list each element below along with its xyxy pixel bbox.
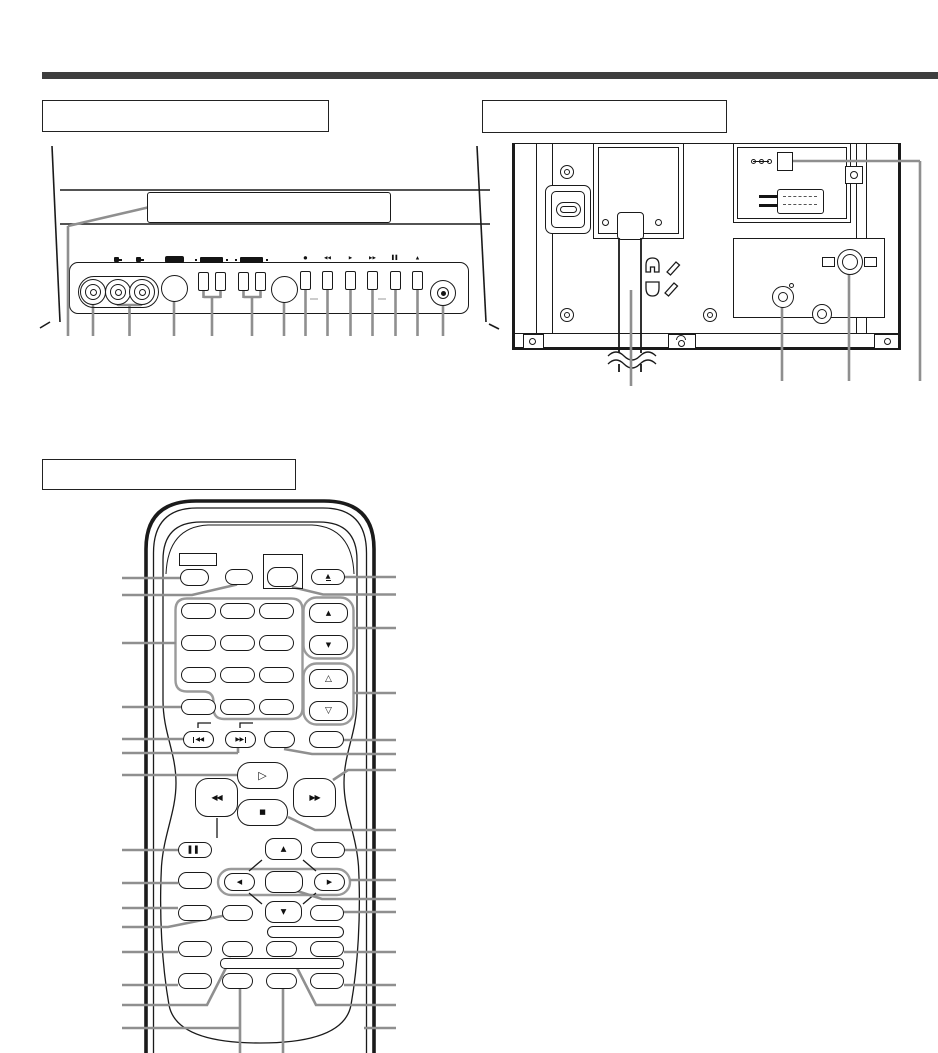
digit-button-8	[220, 667, 255, 683]
enter-button	[259, 699, 294, 715]
leader	[122, 585, 237, 596]
channel-label-bar	[240, 257, 263, 263]
headphone-jack-center	[441, 291, 446, 296]
volume-down-icon: ▼	[326, 642, 331, 649]
front-play-button	[345, 271, 356, 290]
digit-button-6	[259, 635, 294, 651]
plug-detail-line	[783, 196, 817, 197]
leader	[288, 817, 396, 830]
skip-forward-button: ▶▶	[225, 731, 256, 748]
plug-connector	[777, 189, 824, 214]
channel-down-button	[238, 272, 249, 291]
front-fast-forward-button	[367, 271, 378, 290]
pause-icon: ▌▌	[189, 847, 202, 854]
front-eject-button	[412, 271, 423, 290]
remote-button-e3	[266, 973, 297, 989]
leader	[292, 587, 396, 595]
remote-button-c2	[222, 905, 253, 921]
leader	[122, 958, 231, 1005]
pause-icon: ▌▌	[388, 257, 403, 262]
volume-down-button	[198, 272, 209, 291]
remote-button-l3	[178, 905, 212, 921]
remote-volume-down-button: ▼	[309, 635, 348, 655]
base-plate-hole	[678, 340, 685, 347]
panel-divider-mark	[310, 298, 318, 300]
remote-button-d2	[222, 941, 253, 957]
screw-center	[564, 169, 570, 175]
antenna-mount-tab	[864, 257, 877, 267]
nav-down-icon: ▼	[281, 908, 287, 916]
remote-button-d1	[178, 941, 212, 957]
label-tick	[226, 259, 228, 261]
channel-down-icon: ▽	[325, 707, 332, 716]
stop-icon: ■	[259, 809, 266, 816]
rear-panel-label-box	[482, 100, 727, 133]
front-audio-jack-center	[139, 289, 146, 296]
front-panel-label-box	[42, 100, 329, 132]
digit-button-3	[259, 603, 294, 619]
remote-button-c3	[310, 905, 344, 921]
panel-divider-mark	[378, 298, 386, 300]
rear-jack-2-center	[817, 309, 827, 319]
rear-base-line	[512, 333, 901, 334]
remote-eject-button: ▲	[311, 569, 345, 585]
front-knob-1	[161, 275, 188, 302]
remote-button-e4	[310, 973, 344, 989]
leader	[122, 748, 238, 753]
remote-button-l2	[178, 872, 212, 889]
remote-button-r1	[311, 842, 345, 858]
skip-forward-bracket	[240, 723, 253, 728]
base-plate-hole	[529, 338, 536, 345]
remote-channel-up-button: △	[309, 669, 348, 689]
eject-icon: ▲	[326, 573, 331, 582]
antenna-mount-tab	[822, 257, 835, 267]
screw-center	[564, 312, 570, 318]
label-tick	[266, 259, 268, 261]
nav-left-icon: ◀	[237, 879, 242, 886]
eject-icon: ▲	[410, 257, 425, 262]
digit-button-2	[220, 603, 255, 619]
remote-label-box	[42, 459, 296, 490]
play-icon: ▶	[343, 257, 358, 262]
front-rewind-button	[322, 271, 333, 290]
rear-switch	[777, 152, 793, 171]
screw-center	[707, 312, 713, 318]
rear-frame-line	[552, 143, 553, 334]
remote-wide-bar-2	[220, 958, 344, 969]
knob-label-bar	[165, 256, 184, 263]
label-tick	[195, 259, 197, 261]
remote-function-button	[225, 569, 253, 585]
fast-forward-icon: ▶▶	[309, 794, 319, 802]
vent-hole	[602, 219, 609, 226]
leader	[333, 770, 396, 780]
rewind-icon: ◀◀	[211, 794, 221, 802]
plug-prong	[759, 204, 778, 207]
leader	[297, 891, 396, 899]
vent-hole	[655, 219, 662, 226]
remote-button-d4	[310, 941, 344, 957]
front-record-button	[300, 271, 311, 290]
nav-up-button: ▲	[265, 838, 302, 860]
label-tick	[235, 259, 237, 261]
plug-prong	[759, 195, 778, 198]
remote-button-e2	[222, 973, 253, 989]
skip-forward-icon: ▶▶	[235, 737, 245, 743]
rewind-button: ◀◀	[195, 778, 238, 817]
remote-menu-button	[309, 731, 344, 748]
remote-display-button	[264, 731, 295, 748]
remote-wide-bar-1	[267, 926, 344, 938]
input-select-button	[181, 699, 216, 715]
rear-jack-panel	[733, 238, 885, 318]
base-foot-hole	[884, 338, 891, 345]
mount-hole	[850, 171, 858, 179]
leader	[122, 914, 232, 927]
page-top-rule	[42, 72, 938, 79]
channel-up-button	[255, 272, 266, 291]
cassette-door	[147, 192, 391, 223]
play-button: ▷	[237, 762, 288, 789]
digit-button-9	[259, 667, 294, 683]
rear-av-jack-center	[778, 292, 788, 302]
remote-tv-vcr-button	[267, 567, 298, 587]
stop-button: ■	[237, 799, 288, 826]
digit-button-4	[181, 635, 216, 651]
remote-channel-down-button: ▽	[309, 701, 348, 721]
jack-label-mark-tail	[119, 259, 122, 261]
record-icon: ●	[298, 257, 313, 262]
digit-button-7	[181, 667, 216, 683]
power-cord-bracket	[617, 212, 644, 240]
nav-select-button	[265, 871, 303, 893]
pause-button: ▌▌	[178, 842, 212, 858]
nav-right-icon: ▶	[327, 879, 332, 886]
manual-page: ● ◀◀ ▶ ▶▶ ▌▌ ▲ ▲ ▲ ▼ △ ▽ ◀◀ ▶▶ ▷ ◀◀ ▶▶ ■…	[0, 0, 938, 1053]
nav-right-button: ▶	[314, 873, 345, 891]
skip-back-button: ◀◀	[183, 731, 214, 748]
fast-forward-button: ▶▶	[293, 778, 336, 817]
channel-up-icon: △	[325, 675, 332, 684]
leader	[240, 989, 283, 1053]
nav-up-icon: ▲	[281, 845, 287, 853]
skip-back-bracket	[198, 723, 211, 728]
remote-volume-up-button: ▲	[309, 603, 348, 623]
leader	[284, 749, 396, 754]
play-icon: ▷	[258, 770, 266, 781]
remote-button-e1	[178, 973, 212, 989]
front-video-jack-center	[90, 289, 97, 296]
rear-av-jack-mark	[789, 283, 794, 288]
jack-label-mark-tail	[141, 259, 144, 261]
digit-button-5	[220, 635, 255, 651]
skip-back-icon: ◀◀	[193, 737, 203, 743]
nav-down-button: ▼	[265, 901, 302, 923]
remote-label-frame-1	[179, 553, 217, 566]
volume-label-bar	[200, 257, 223, 263]
fast-forward-icon: ▶▶	[365, 257, 380, 262]
antenna-coax-inner	[842, 254, 858, 270]
rear-frame-line	[536, 143, 537, 334]
nav-left-button: ◀	[224, 873, 255, 891]
front-pause-button	[390, 271, 401, 290]
rewind-icon: ◀◀	[320, 257, 335, 262]
digit-button-1	[181, 603, 216, 619]
plug-detail-line	[783, 204, 817, 205]
digit-button-0	[220, 699, 255, 715]
front-audio-jack-center	[115, 289, 122, 296]
rear-switch-slot-inner	[560, 206, 577, 213]
remote-button-d3	[266, 941, 297, 957]
volume-up-button	[215, 272, 226, 291]
front-knob-2	[271, 276, 298, 303]
reset-icon-line	[753, 161, 769, 162]
volume-up-icon: ▲	[326, 610, 331, 617]
remote-power-button	[180, 569, 209, 586]
